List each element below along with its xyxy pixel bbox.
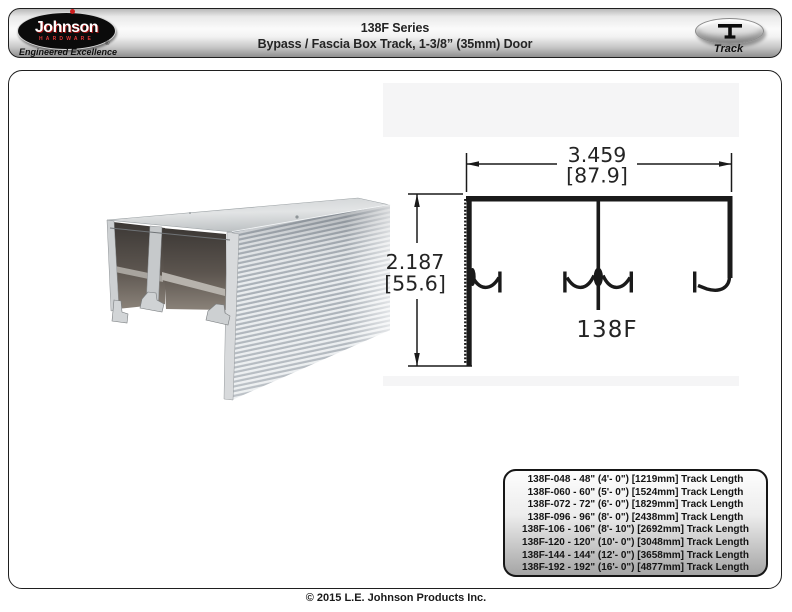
table-row: 138F-048 - 48" (4'- 0") [1219mm] Track L… <box>505 474 766 487</box>
table-row: 138F-106 - 106" (8'- 10") [2692mm] Track… <box>505 524 766 537</box>
technical-drawing: 3.459 [87.9] 2.187 [55.6] 138F <box>385 125 765 400</box>
height-dimension-mm: [55.6] <box>385 272 446 296</box>
table-row: 138F-060 - 60" (5'- 0") [1524mm] Track L… <box>505 487 766 500</box>
track-profile-icon <box>715 23 745 40</box>
track-badge <box>695 18 764 44</box>
track-cross-section-end <box>107 220 239 400</box>
table-row: 138F-120 - 120" (10'- 0") [3048mm] Track… <box>505 537 766 550</box>
width-dimension-mm: [87.9] <box>566 164 628 188</box>
table-row: 138F-144 - 144" (12'- 0") [3658mm] Track… <box>505 550 766 563</box>
datasheet-page: Johnson HARDWARE ® Engineered Excellence… <box>0 0 792 612</box>
copyright-text: © 2015 L.E. Johnson Products Inc. <box>0 592 792 604</box>
table-row: 138F-192 - 192" (16'- 0") [4877mm] Track… <box>505 562 766 575</box>
track-badge-label: Track <box>695 43 762 55</box>
header-bar: Johnson HARDWARE ® Engineered Excellence… <box>8 8 782 58</box>
track-ribbed-fascia <box>232 205 390 400</box>
product-photo <box>70 192 395 407</box>
page-title: 138F Series Bypass / Fascia Box Track, 1… <box>9 20 781 52</box>
track-length-table: 138F-048 - 48" (4'- 0") [1219mm] Track L… <box>503 469 768 577</box>
product-subtitle: Bypass / Fascia Box Track, 1-3/8” (35mm)… <box>9 36 781 52</box>
series-title: 138F Series <box>9 20 781 36</box>
part-number-label: 138F <box>576 317 637 343</box>
table-row: 138F-072 - 72" (6'- 0") [1829mm] Track L… <box>505 499 766 512</box>
logo-red-dot-icon <box>70 9 75 14</box>
height-dimension-inches: 2.187 <box>386 250 445 274</box>
table-row: 138F-096 - 96" (8'- 0") [2438mm] Track L… <box>505 512 766 525</box>
